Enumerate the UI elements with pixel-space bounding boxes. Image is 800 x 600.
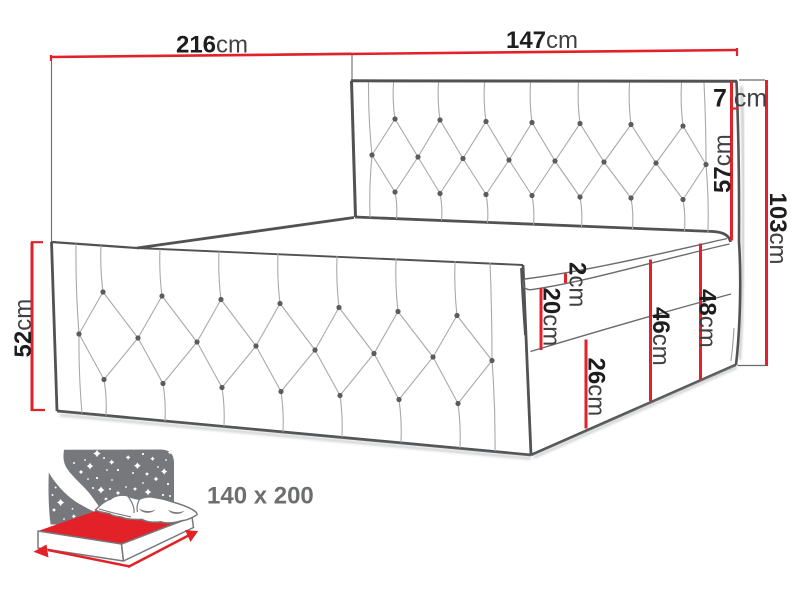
svg-text:52cm: 52cm [10, 299, 37, 358]
svg-text:46cm: 46cm [647, 307, 674, 366]
svg-text:147cm: 147cm [506, 27, 578, 54]
svg-text:140 x 200: 140 x 200 [207, 483, 314, 510]
svg-text:48cm: 48cm [694, 289, 721, 348]
svg-text:26cm: 26cm [583, 358, 610, 417]
svg-text:2cm: 2cm [564, 262, 591, 307]
svg-text:103cm: 103cm [764, 193, 791, 265]
svg-text:57cm: 57cm [709, 134, 736, 193]
svg-text:20cm: 20cm [538, 288, 565, 347]
svg-text:216cm: 216cm [176, 32, 248, 59]
svg-text:7cm: 7cm [713, 85, 767, 113]
